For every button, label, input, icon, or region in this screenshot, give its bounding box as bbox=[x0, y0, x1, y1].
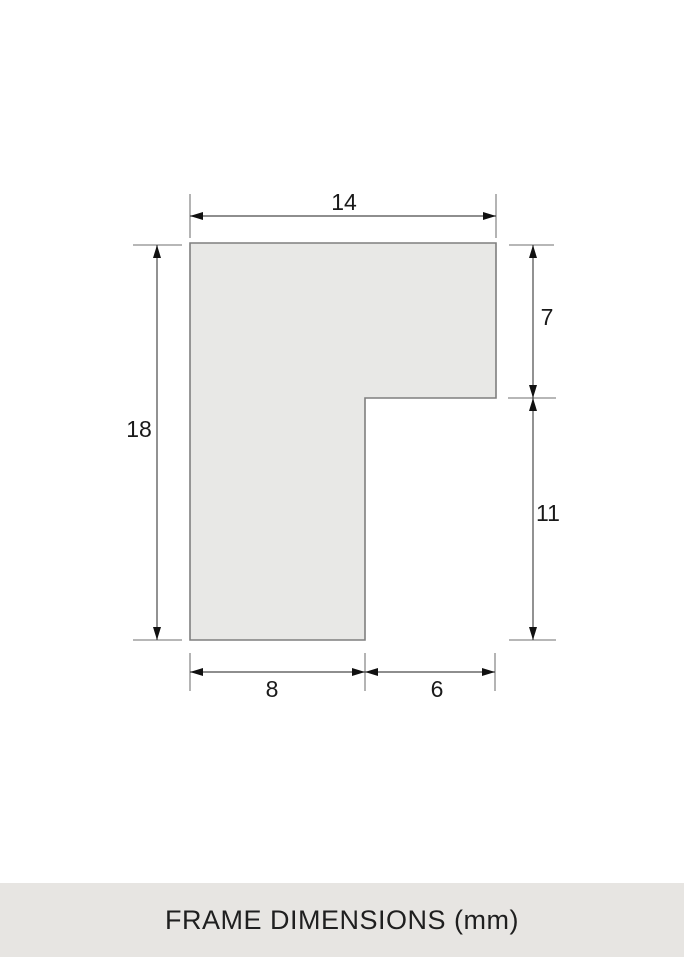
dim-label-lower-right-height: 11 bbox=[536, 500, 560, 526]
frame-profile-diagram: 14 18 7 11 bbox=[0, 0, 684, 883]
arrowhead-up bbox=[153, 245, 161, 258]
arrowhead-right bbox=[483, 212, 496, 220]
dim-label-bottom-right-width: 6 bbox=[431, 676, 444, 702]
dimension-bottom-right-width: 6 bbox=[365, 653, 495, 702]
dim-label-top-section-height: 7 bbox=[541, 304, 554, 330]
dimension-bottom-left-width: 8 bbox=[190, 653, 365, 702]
dim-label-total-height: 18 bbox=[126, 416, 152, 442]
frame-profile-shape bbox=[190, 243, 496, 640]
dimension-total-width: 14 bbox=[190, 189, 496, 238]
arrowhead-left bbox=[190, 668, 203, 676]
dimension-top-section-height: 7 bbox=[508, 245, 556, 398]
caption-bar: FRAME DIMENSIONS (mm) bbox=[0, 883, 684, 957]
dim-label-bottom-left-width: 8 bbox=[266, 676, 279, 702]
arrowhead-down bbox=[529, 627, 537, 640]
arrowhead-right bbox=[352, 668, 365, 676]
dimension-total-height: 18 bbox=[126, 245, 182, 640]
arrowhead-left bbox=[365, 668, 378, 676]
arrowhead-right bbox=[482, 668, 495, 676]
arrowhead-down bbox=[529, 385, 537, 398]
caption-text: FRAME DIMENSIONS (mm) bbox=[165, 905, 519, 936]
arrowhead-up bbox=[529, 245, 537, 258]
page: 14 18 7 11 bbox=[0, 0, 684, 957]
dim-label-total-width: 14 bbox=[331, 189, 357, 215]
arrowhead-up bbox=[529, 398, 537, 411]
arrowhead-down bbox=[153, 627, 161, 640]
arrowhead-left bbox=[190, 212, 203, 220]
dimension-lower-right-height: 11 bbox=[509, 398, 560, 640]
